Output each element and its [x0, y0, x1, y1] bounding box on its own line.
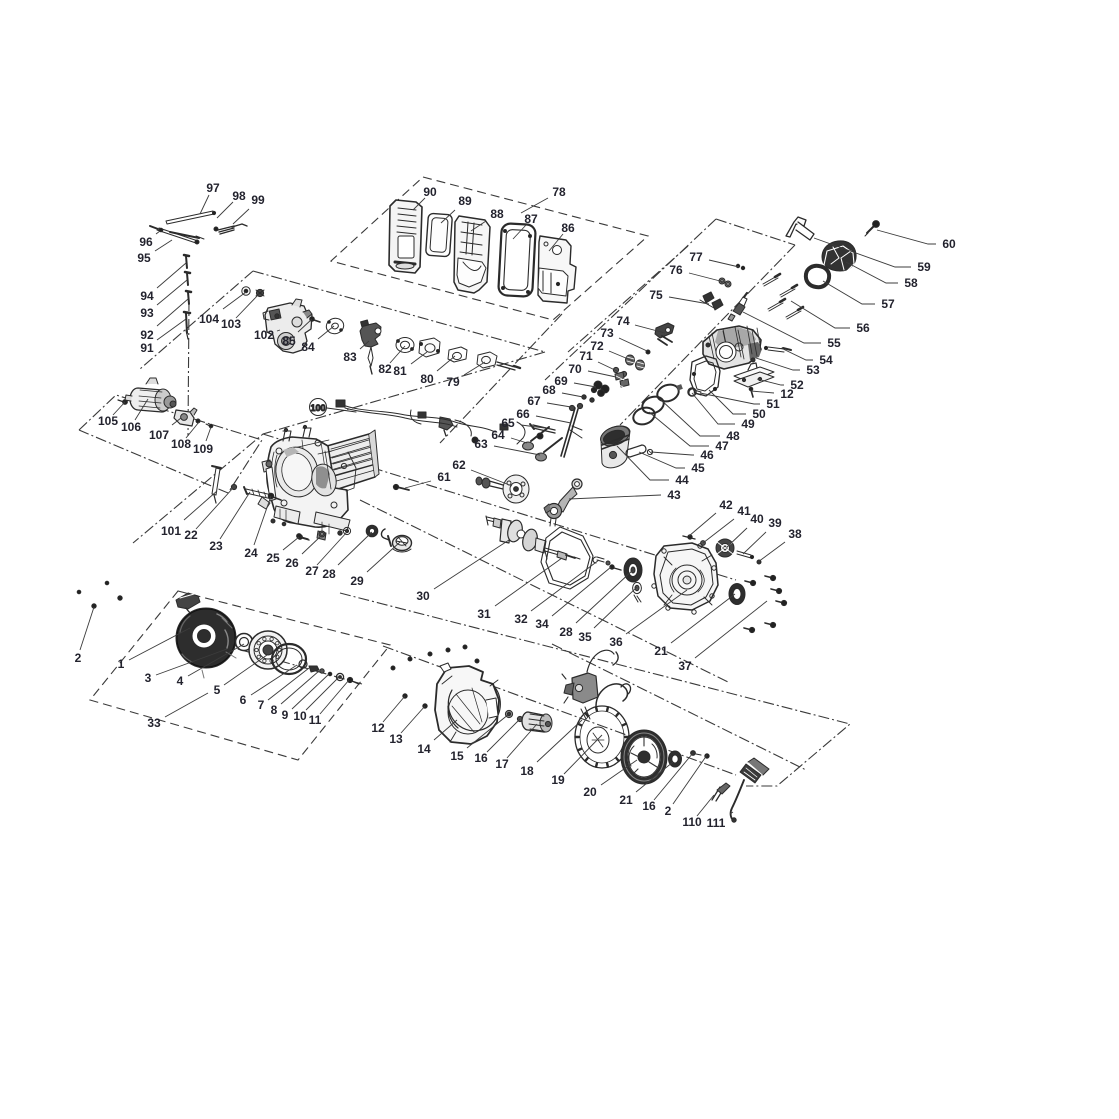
svg-text:32: 32 — [514, 612, 528, 626]
svg-text:57: 57 — [881, 297, 895, 311]
svg-text:24: 24 — [244, 546, 258, 560]
svg-text:47: 47 — [715, 439, 729, 453]
svg-text:3: 3 — [145, 671, 152, 685]
svg-text:61: 61 — [437, 470, 451, 484]
svg-text:45: 45 — [691, 461, 705, 475]
svg-text:1: 1 — [118, 657, 125, 671]
svg-text:58: 58 — [904, 276, 918, 290]
svg-text:80: 80 — [420, 372, 434, 386]
svg-text:44: 44 — [675, 473, 689, 487]
svg-text:89: 89 — [458, 194, 472, 208]
svg-text:70: 70 — [568, 362, 582, 376]
svg-text:103: 103 — [221, 317, 241, 331]
svg-text:12: 12 — [371, 721, 385, 735]
svg-text:109: 109 — [193, 442, 213, 456]
svg-text:43: 43 — [667, 488, 681, 502]
svg-text:77: 77 — [689, 250, 703, 264]
svg-text:100: 100 — [310, 403, 325, 413]
svg-text:86: 86 — [561, 221, 575, 235]
svg-text:92: 92 — [140, 328, 154, 342]
svg-text:55: 55 — [827, 336, 841, 350]
svg-text:56: 56 — [856, 321, 870, 335]
svg-text:91: 91 — [140, 341, 154, 355]
svg-text:110: 110 — [682, 815, 702, 829]
svg-text:93: 93 — [140, 306, 154, 320]
svg-text:37: 37 — [678, 659, 692, 673]
svg-text:11: 11 — [309, 713, 322, 727]
svg-text:75: 75 — [649, 288, 663, 302]
svg-text:99: 99 — [251, 193, 265, 207]
svg-text:40: 40 — [750, 512, 764, 526]
svg-text:67: 67 — [527, 394, 541, 408]
svg-text:81: 81 — [393, 364, 407, 378]
svg-text:46: 46 — [700, 448, 714, 462]
svg-text:30: 30 — [416, 589, 430, 603]
svg-text:96: 96 — [139, 235, 153, 249]
svg-text:111: 111 — [707, 816, 726, 830]
svg-text:94: 94 — [140, 289, 154, 303]
svg-text:85: 85 — [282, 334, 296, 348]
svg-text:29: 29 — [350, 574, 364, 588]
svg-text:107: 107 — [149, 428, 169, 442]
svg-text:4: 4 — [177, 674, 184, 688]
svg-text:63: 63 — [474, 437, 488, 451]
svg-text:31: 31 — [477, 607, 491, 621]
svg-text:36: 36 — [609, 635, 623, 649]
svg-text:13: 13 — [389, 732, 403, 746]
svg-text:17: 17 — [495, 757, 509, 771]
svg-text:54: 54 — [819, 353, 833, 367]
svg-text:42: 42 — [719, 498, 733, 512]
svg-text:64: 64 — [491, 428, 505, 442]
svg-text:10: 10 — [293, 709, 307, 723]
svg-text:108: 108 — [171, 437, 191, 451]
svg-text:9: 9 — [282, 708, 289, 722]
svg-text:104: 104 — [199, 312, 219, 326]
svg-text:53: 53 — [806, 363, 820, 377]
svg-text:38: 38 — [788, 527, 802, 541]
svg-text:101: 101 — [161, 524, 181, 538]
svg-text:25: 25 — [266, 551, 280, 565]
svg-text:59: 59 — [917, 260, 931, 274]
svg-text:14: 14 — [417, 742, 431, 756]
svg-text:97: 97 — [206, 181, 220, 195]
svg-text:62: 62 — [452, 458, 466, 472]
svg-text:34: 34 — [535, 617, 549, 631]
svg-text:84: 84 — [301, 340, 315, 354]
svg-text:78: 78 — [552, 185, 566, 199]
svg-text:12: 12 — [780, 387, 794, 401]
svg-text:19: 19 — [551, 773, 565, 787]
svg-text:76: 76 — [669, 263, 683, 277]
svg-text:98: 98 — [232, 189, 246, 203]
svg-text:95: 95 — [137, 251, 151, 265]
svg-text:39: 39 — [768, 516, 782, 530]
svg-text:79: 79 — [446, 375, 460, 389]
svg-text:26: 26 — [285, 556, 299, 570]
svg-text:16: 16 — [642, 799, 656, 813]
svg-text:35: 35 — [578, 630, 592, 644]
svg-text:68: 68 — [542, 383, 556, 397]
svg-text:22: 22 — [184, 528, 198, 542]
svg-text:69: 69 — [554, 374, 568, 388]
svg-text:7: 7 — [258, 698, 265, 712]
svg-text:82: 82 — [378, 362, 392, 376]
svg-text:28: 28 — [559, 625, 573, 639]
svg-text:16: 16 — [474, 751, 488, 765]
svg-text:71: 71 — [579, 349, 593, 363]
svg-text:5: 5 — [214, 683, 221, 697]
svg-text:2: 2 — [75, 651, 82, 665]
svg-text:33: 33 — [147, 716, 161, 730]
svg-text:105: 105 — [98, 414, 118, 428]
svg-text:83: 83 — [343, 350, 357, 364]
svg-text:66: 66 — [516, 407, 530, 421]
svg-text:23: 23 — [209, 539, 223, 553]
svg-text:21: 21 — [619, 793, 633, 807]
svg-text:41: 41 — [737, 504, 751, 518]
svg-text:74: 74 — [616, 314, 630, 328]
svg-text:87: 87 — [524, 212, 538, 226]
svg-text:73: 73 — [600, 326, 614, 340]
svg-text:51: 51 — [766, 397, 780, 411]
svg-text:90: 90 — [423, 185, 437, 199]
svg-text:106: 106 — [121, 420, 141, 434]
svg-text:28: 28 — [322, 567, 336, 581]
svg-text:49: 49 — [741, 417, 755, 431]
svg-text:88: 88 — [490, 207, 504, 221]
svg-text:60: 60 — [942, 237, 956, 251]
svg-text:15: 15 — [450, 749, 464, 763]
svg-text:20: 20 — [583, 785, 597, 799]
svg-text:6: 6 — [240, 693, 247, 707]
svg-text:102: 102 — [254, 328, 274, 342]
svg-text:27: 27 — [305, 564, 319, 578]
svg-text:2: 2 — [665, 804, 672, 818]
svg-text:8: 8 — [271, 703, 278, 717]
svg-text:21: 21 — [654, 644, 668, 658]
svg-text:18: 18 — [520, 764, 534, 778]
